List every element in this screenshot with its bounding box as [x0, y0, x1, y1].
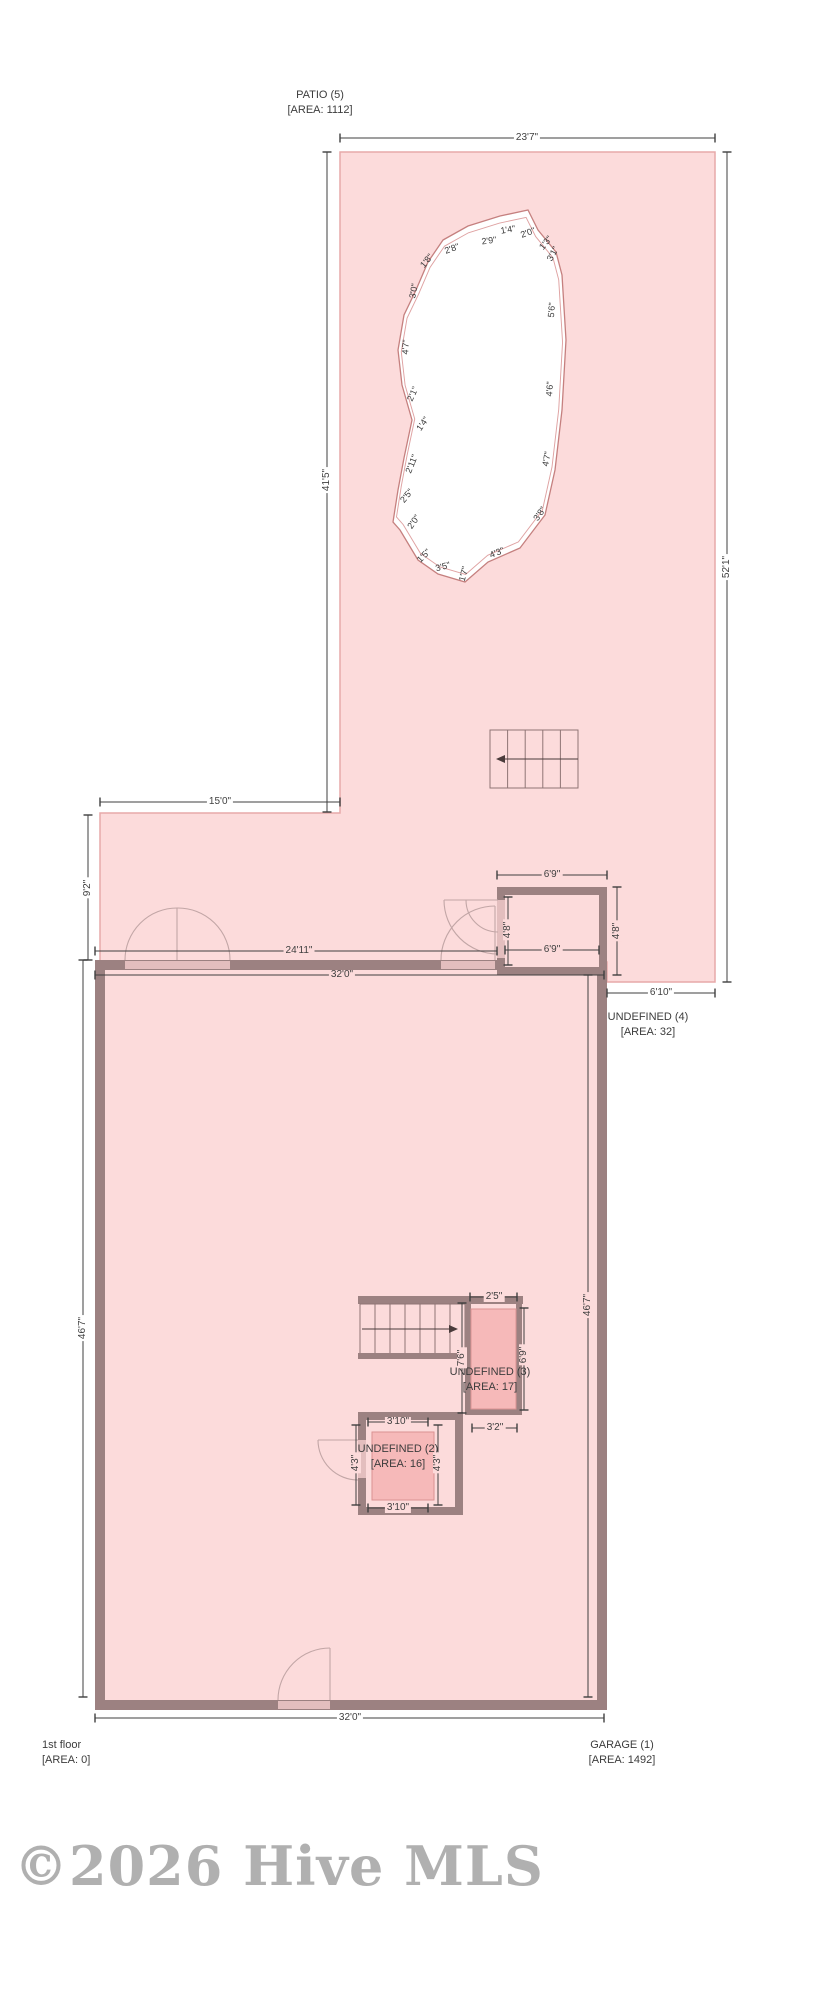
- first-floor-title: 1st floor [AREA: 0]: [42, 1738, 90, 1768]
- dim-floor-bottom: 32'0": [337, 1713, 363, 1723]
- dim-room2-top: 3'10": [385, 1417, 411, 1427]
- undefined4-area: [AREA: 32]: [608, 1025, 689, 1040]
- dim-floor-left: 46'7": [78, 1315, 88, 1341]
- garage-title: GARAGE (1) [AREA: 1492]: [589, 1738, 656, 1768]
- dim-patio-left: 41'5": [322, 467, 332, 493]
- garage-name: GARAGE (1): [589, 1738, 656, 1753]
- undefined2-title: UNDEFINED (2) [AREA: 16]: [358, 1442, 439, 1472]
- dim-floor-right: 46'7": [583, 1292, 593, 1318]
- first-floor-area: [AREA: 0]: [42, 1753, 90, 1768]
- dim-room3-bottom: 3'2": [485, 1423, 506, 1433]
- dim-room4-left: 4'8": [503, 920, 513, 941]
- garage-structure: [95, 960, 607, 1710]
- watermark: ©2026 Hive MLS: [14, 1834, 544, 1898]
- pool-dim-label: 4'7": [401, 339, 411, 354]
- dim-patio-strip: 6'10": [648, 988, 674, 998]
- garage-area: [AREA: 1492]: [589, 1753, 656, 1768]
- dim-room3-right: 6'9": [519, 1345, 529, 1366]
- undefined4-name: UNDEFINED (4): [608, 1010, 689, 1025]
- dim-ext-left: 9'2": [83, 878, 93, 899]
- undefined4-title: UNDEFINED (4) [AREA: 32]: [608, 1010, 689, 1040]
- pool-dim-label: 5'6": [547, 302, 557, 318]
- patio-region: [100, 152, 715, 982]
- pool-dim-label: 4'6": [545, 381, 555, 397]
- room-undefined-3: [465, 1303, 522, 1415]
- patio-area: [AREA: 1112]: [287, 103, 352, 118]
- dim-room2-right: 4'3": [433, 1453, 443, 1474]
- dim-room4-right: 4'8": [612, 921, 622, 942]
- dim-room4-top: 6'9": [542, 870, 563, 880]
- undefined2-area: [AREA: 16]: [358, 1457, 439, 1472]
- first-floor-name: 1st floor: [42, 1738, 90, 1753]
- dim-room2-left: 4'3": [351, 1453, 361, 1474]
- floorplan-canvas: PATIO (5) [AREA: 1112] UNDEFINED (4) [AR…: [0, 0, 817, 2000]
- patio-name: PATIO (5): [287, 88, 352, 103]
- dim-floor-top: 32'0": [329, 970, 355, 980]
- undefined2-name: UNDEFINED (2): [358, 1442, 439, 1457]
- floorplan-drawing: [0, 0, 817, 2000]
- undefined3-area: [AREA: 17]: [450, 1380, 531, 1395]
- dim-room3-left: 7'6": [457, 1348, 467, 1369]
- patio-title: PATIO (5) [AREA: 1112]: [287, 88, 352, 118]
- undefined3-title: UNDEFINED (3) [AREA: 17]: [450, 1365, 531, 1395]
- dim-room4-bottom: 6'9": [542, 945, 563, 955]
- dim-room2-bottom: 3'10": [385, 1503, 411, 1513]
- room-undefined-4: [497, 887, 607, 975]
- dim-patio-top: 23'7": [514, 133, 540, 143]
- dim-floor-top-inner: 24'11": [284, 946, 315, 956]
- dim-room3-top: 2'5": [484, 1292, 505, 1302]
- dim-ext-top: 15'0": [207, 797, 233, 807]
- dim-patio-right: 52'1": [722, 554, 732, 580]
